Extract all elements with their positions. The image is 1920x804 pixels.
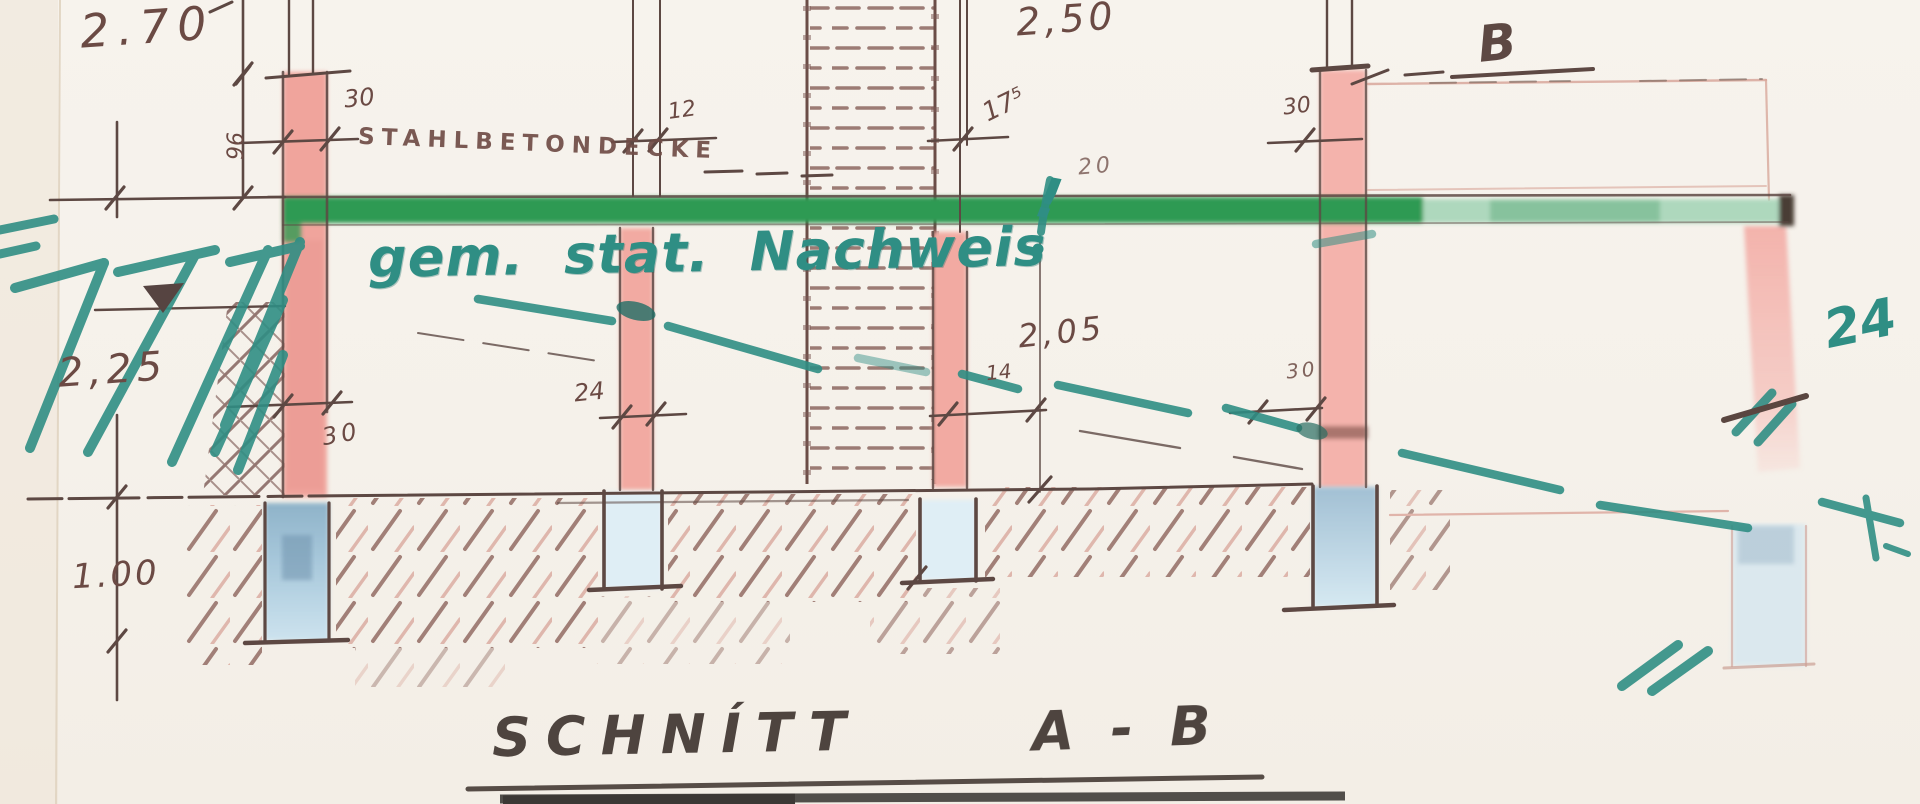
width-14-col3-base: 14 (985, 361, 1012, 384)
annotation: gem. stat. Nachweis (368, 220, 1047, 286)
blueprint-scan-section-a-b: 2.70 2,50 30 12 17⁵ 30 20 96 STAHLBETOND… (0, 0, 1920, 804)
wall-height-96: 96 (226, 132, 248, 160)
width-30-col4-top: 30 (1282, 94, 1312, 119)
dim-205: 2,05 (1017, 312, 1107, 353)
column-5 (1744, 226, 1800, 472)
column-4 (1320, 70, 1366, 488)
width-30-col1-base: 30 (320, 419, 362, 449)
foundation-4 (1313, 487, 1377, 607)
soil-hatch (185, 487, 1450, 687)
page-title-schnitt: SCHNÍTT (492, 705, 862, 765)
bottom-edge-band (500, 796, 1345, 801)
footing-2 (604, 492, 662, 588)
beam-label-b: B (1475, 16, 1518, 70)
section-drawing (0, 0, 1920, 804)
double-slash-mark (1622, 645, 1708, 691)
dim-250: 2,50 (1015, 0, 1118, 41)
slab-thickness-20: 20 (1077, 154, 1115, 179)
width-24-col5-marked: 24 (1819, 291, 1901, 357)
dim-270: 2.70 (79, 0, 216, 55)
dim-225: 2,25 (57, 346, 169, 394)
width-12-col2-top: 12 (667, 98, 698, 124)
width-30-col1-top: 30 (343, 84, 376, 111)
width-24-col2-base: 24 (573, 378, 606, 405)
width-30-col4-base: 30 (1285, 358, 1318, 381)
page-title-a-b: A - B (1031, 699, 1221, 760)
dim-100: 1.00 (71, 556, 160, 595)
footing-3 (920, 500, 976, 580)
beam-outline (1368, 79, 1769, 200)
